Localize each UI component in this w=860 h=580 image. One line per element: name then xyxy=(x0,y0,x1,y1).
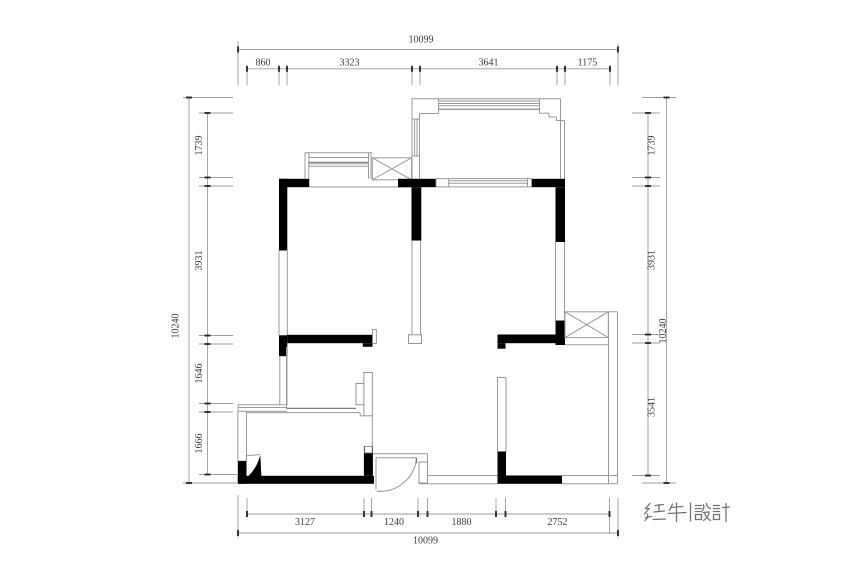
svg-text:3127: 3127 xyxy=(295,517,315,528)
svg-text:2752: 2752 xyxy=(548,517,568,528)
svg-text:1240: 1240 xyxy=(384,517,404,528)
svg-text:3931: 3931 xyxy=(194,251,205,271)
svg-text:3641: 3641 xyxy=(479,58,499,69)
svg-text:3541: 3541 xyxy=(647,397,658,417)
svg-text:10099: 10099 xyxy=(413,536,438,547)
svg-text:10240: 10240 xyxy=(171,314,182,339)
svg-text:1880: 1880 xyxy=(452,517,472,528)
svg-text:1739: 1739 xyxy=(194,136,205,156)
svg-text:10240: 10240 xyxy=(658,319,669,344)
svg-text:3931: 3931 xyxy=(647,250,658,270)
svg-text:3323: 3323 xyxy=(340,58,360,69)
svg-text:860: 860 xyxy=(256,58,271,69)
svg-text:1175: 1175 xyxy=(578,58,598,69)
svg-text:1666: 1666 xyxy=(194,434,205,454)
svg-text:1739: 1739 xyxy=(647,136,658,156)
svg-text:10099: 10099 xyxy=(409,35,434,46)
svg-text:1646: 1646 xyxy=(194,364,205,384)
